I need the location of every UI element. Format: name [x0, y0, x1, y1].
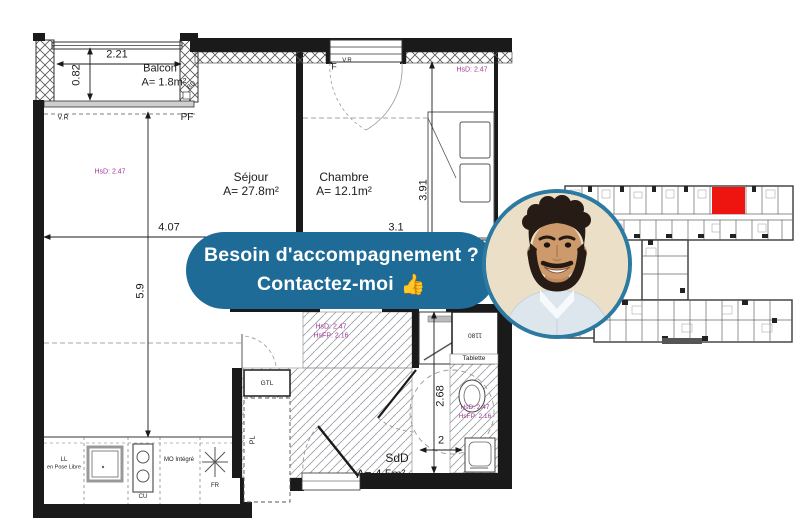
label-ll: LL — [61, 457, 68, 463]
dim-balcony-width: 2.21 — [106, 50, 127, 61]
height-wc-hsfp: HsFP: 2.16 — [459, 414, 492, 421]
thumbs-up-icon: 👍 — [401, 272, 426, 297]
label-vr-balcony: V.R — [57, 115, 68, 122]
label-pl: PL — [250, 436, 257, 445]
label-mo-integre: MO Intégré — [164, 457, 194, 463]
floor-plan-advert: Balcon A= 1.8m² 2.21 0.82 V.R PF BD Séjo… — [0, 0, 800, 526]
height-entry-hsd: HsD: 2.47 — [315, 324, 346, 331]
dim-balcony-depth: 0.82 — [72, 64, 83, 85]
room-name-chambre: Chambre — [319, 171, 368, 183]
label-niche-width: 1180 — [468, 331, 482, 338]
label-ll-pose-libre: en Pose Libre — [47, 465, 81, 471]
height-entry-hsfp: HsFP: 2.16 — [313, 333, 348, 340]
highlighted-unit — [712, 187, 745, 214]
room-area-sdd: A= 4.5m² — [356, 468, 405, 480]
label-fr: FR — [211, 483, 219, 489]
agent-portrait-drawing — [486, 193, 628, 335]
cta-banner: Besoin d'accompagnement ? Contactez-moi … — [186, 232, 497, 309]
height-wc-hsd: HsD: 2.47 — [461, 405, 490, 412]
dim-sdd-width: 2 — [438, 436, 444, 447]
room-area-chambre: A= 12.1m² — [316, 185, 372, 197]
cta-line2: Contactez-moi — [257, 273, 394, 296]
label-tablette: Tablette — [463, 356, 486, 363]
dim-sejour-height: 5.9 — [136, 283, 147, 298]
dim-sejour-width: 4.07 — [158, 223, 179, 234]
room-name-sdd: SdD — [385, 452, 408, 464]
dim-sdd-height: 2.68 — [436, 385, 447, 406]
height-sejour: HsD: 2.47 — [94, 169, 125, 176]
cta-line1: Besoin d'accompagnement ? — [204, 244, 479, 267]
height-chambre: HsD: 2.47 — [456, 67, 487, 74]
dim-chambre-height: 3.91 — [419, 179, 430, 200]
room-name-balcon: Balcon — [143, 64, 177, 75]
label-cu: CU — [139, 494, 148, 500]
label-pf: PF — [181, 113, 194, 123]
room-area-balcon: A= 1.8m² — [142, 78, 187, 89]
label-vr-window: V.R — [342, 58, 351, 64]
room-area-sejour: A= 27.8m² — [223, 185, 279, 197]
room-name-sejour: Séjour — [234, 171, 269, 183]
agent-portrait — [482, 189, 632, 339]
label-gtl: GTL — [261, 381, 274, 388]
label-f-window: F — [331, 63, 337, 72]
